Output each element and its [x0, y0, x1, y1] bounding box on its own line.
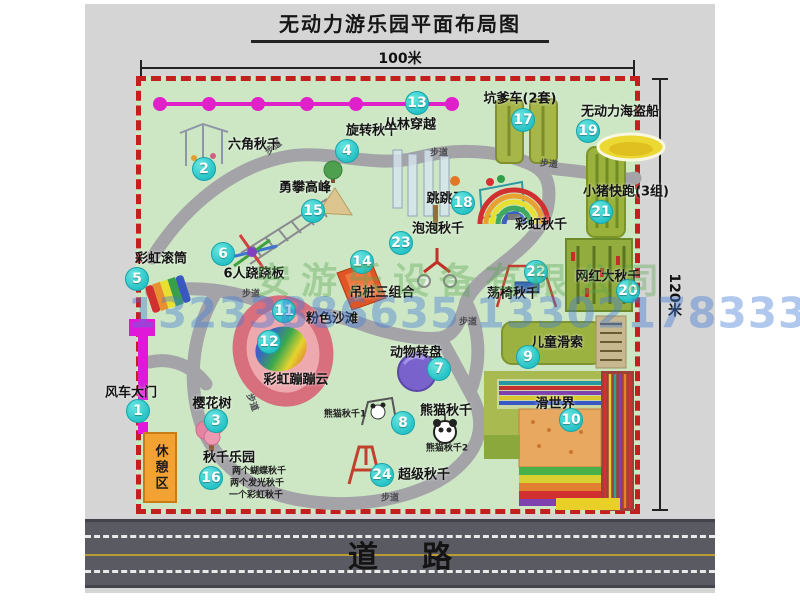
poi-badge-22: 22	[524, 260, 548, 284]
road: 道路	[85, 519, 715, 588]
page-title: 无动力游乐园平面布局图	[251, 8, 549, 43]
poi-badge-16: 16	[199, 466, 223, 490]
poi-label-rainbowroller: 彩虹滚筒	[135, 248, 187, 267]
poi-badge-10: 10	[559, 408, 583, 432]
poi-label-pinkbeach: 粉色沙滩	[306, 308, 358, 327]
poi-badge-15: 15	[301, 199, 325, 223]
poi-label-climbpeak: 勇攀高峰	[279, 177, 331, 196]
poi-badge-23: 23	[389, 231, 413, 255]
poi-badge-20: 20	[616, 279, 640, 303]
poi-label-rainbowswing: 彩虹秋千	[515, 214, 567, 233]
right-dimension-tick-bottom	[652, 509, 668, 511]
path-label-5: 步道	[459, 315, 477, 328]
poi-badge-19: 19	[576, 119, 600, 143]
poi-badge-18: 18	[451, 191, 475, 215]
path-label-2: 步道	[430, 146, 448, 159]
poi-label-pirateship: 无动力海盗船	[581, 101, 659, 120]
poi-label-bumpercar: 坑爹车(2套)	[484, 88, 557, 107]
right-dimension-tick-top	[652, 78, 668, 80]
poi-label-pigrun: 小猪快跑(3组)	[583, 181, 669, 200]
path-label-6: 步道	[381, 491, 399, 504]
playground-map-page: 无动力游乐园平面布局图 100米 120米	[0, 0, 800, 600]
poi-label-pandaswing: 熊猫秋千	[420, 400, 472, 419]
poi-badge-9: 9	[516, 345, 540, 369]
poi-badge-1: 1	[126, 399, 150, 423]
poi-badge-2: 2	[192, 157, 216, 181]
poi-sublabel-panda2: 熊猫秋千2	[426, 441, 468, 454]
rest-area: 休憩区	[143, 432, 177, 503]
poi-label-hexswing: 六角秋千	[228, 134, 280, 153]
poi-badge-14: 14	[350, 250, 374, 274]
poi-label-bubbleswing: 泡泡秋千	[412, 218, 464, 237]
poi-badge-11: 11	[272, 299, 296, 323]
road-label: 道路	[304, 532, 496, 576]
poi-label-chairswing: 荡椅秋千	[487, 283, 539, 302]
poi-sublabel-panda1: 熊猫秋千1	[324, 407, 366, 420]
poi-badge-24: 24	[370, 463, 394, 487]
top-dimension-tick-right	[633, 60, 635, 76]
poi-badge-6: 6	[211, 242, 235, 266]
width-dimension-label: 100米	[378, 48, 421, 68]
poi-badge-12: 12	[257, 330, 281, 354]
poi-label-jungle: 丛林穿越	[384, 114, 436, 133]
poi-label-kidszipline: 儿童滑索	[531, 332, 583, 351]
poi-label-seesaw: 6人跷跷板	[223, 263, 284, 282]
poi-badge-5: 5	[125, 267, 149, 291]
poi-badge-17: 17	[511, 108, 535, 132]
poi-badge-8: 8	[391, 411, 415, 435]
poi-label-rainbowcloud: 彩虹蹦蹦云	[263, 369, 328, 388]
height-dimension-label: 120米	[664, 273, 684, 316]
poi-badge-3: 3	[204, 409, 228, 433]
poi-badge-4: 4	[335, 139, 359, 163]
rest-area-label: 休憩区	[151, 444, 170, 492]
poi-label-hangpiles: 吊桩三组合	[349, 282, 414, 301]
poi-label-gate: 风车大门	[105, 382, 157, 401]
poi-badge-21: 21	[589, 200, 613, 224]
poi-badge-7: 7	[427, 357, 451, 381]
path-label-4: 步道	[242, 287, 260, 300]
top-dimension-tick-left	[140, 60, 142, 76]
poi-label-superswing: 超级秋千	[398, 464, 450, 483]
path-label-3: 步道	[539, 156, 558, 171]
poi-badge-13: 13	[405, 91, 429, 115]
right-dimension-line	[659, 78, 661, 511]
poi-sublabel-swingpark-3: 一个彩虹秋千	[229, 488, 283, 501]
